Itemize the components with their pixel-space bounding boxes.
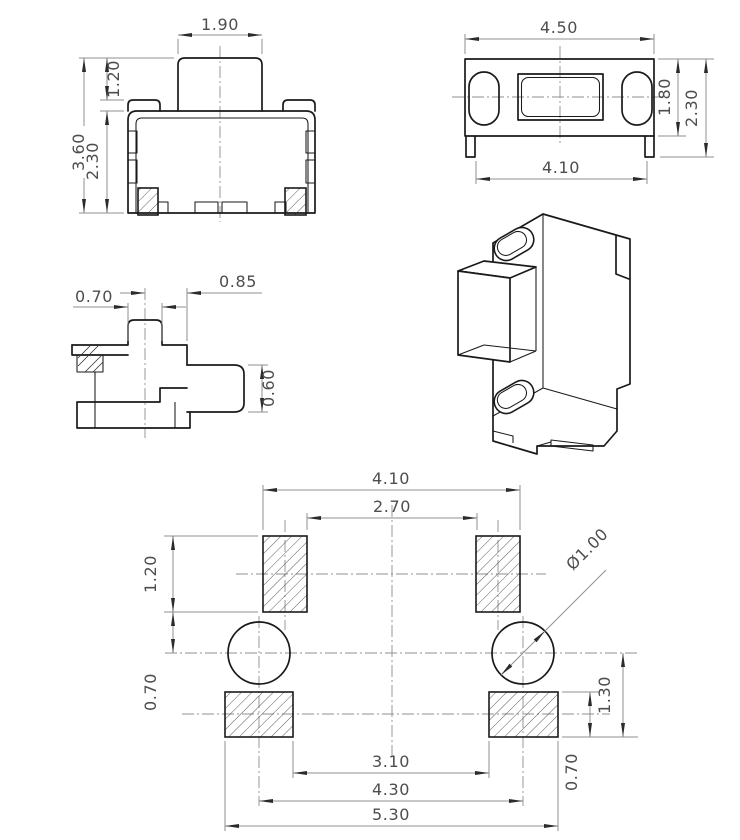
dim-lower-pad-height: 0.70 [562, 753, 581, 791]
side-flange [72, 345, 128, 355]
dim-boss-width: 0.70 [75, 287, 113, 306]
lower-pad-left [225, 692, 293, 737]
technical-drawing: 1.90 3.60 1.20 2.30 4.50 4.10 1.80 2.30 [0, 0, 740, 840]
side-stem [187, 365, 244, 412]
section-hatch [78, 345, 103, 372]
dim-center-to-face: 0.85 [219, 272, 257, 291]
body-inner-outline [136, 118, 308, 213]
oval-boss-left [469, 72, 499, 125]
iso-base-plate [493, 409, 617, 454]
side-profile-upper [72, 320, 187, 365]
drawing-sheet: 1.90 3.60 1.20 2.30 4.50 4.10 1.80 2.30 [0, 0, 740, 840]
top-body-outline [465, 59, 654, 136]
oval-boss-right [622, 72, 652, 125]
dim-pad-height: 1.20 [141, 555, 160, 593]
top-view: 4.50 4.10 1.80 2.30 [452, 18, 714, 184]
dim-lower-pad-inner-span: 3.10 [372, 752, 410, 771]
dim-overall-depth: 2.30 [682, 89, 701, 127]
top-legs [466, 136, 654, 157]
dim-terminal-span: 4.10 [542, 158, 580, 177]
land-pattern-view: 4.10 2.70 1.20 0.70 Ø1.00 1.30 0.70 3.10… [141, 469, 638, 831]
dim-lower-pad-pitch: 4.30 [372, 780, 410, 799]
terminal-right-hatched [285, 188, 306, 215]
dim-stem-height: 0.60 [259, 369, 278, 407]
body-bump-left [128, 100, 160, 111]
top-centerlines [452, 46, 666, 146]
iso-base-details [493, 431, 593, 451]
button-outline [178, 58, 262, 111]
dim-pad-inner-span: 2.70 [373, 497, 411, 516]
iso-button-front [458, 271, 510, 362]
dim-overall-width: 4.50 [540, 18, 578, 37]
side-base [77, 388, 190, 428]
isometric-view [458, 214, 630, 454]
dim-pad-to-hole-center: 0.70 [141, 673, 160, 711]
side-flange-block [77, 355, 103, 402]
dim-button-height: 1.20 [104, 60, 123, 98]
center-tabs [195, 202, 247, 213]
wall-notches [128, 131, 315, 183]
top-dimensions: 4.50 4.10 1.80 2.30 [465, 18, 714, 184]
terminal-left-hatched [138, 188, 158, 215]
front-dimensions: 1.90 3.60 1.20 2.30 [69, 15, 262, 213]
front-view: 1.90 3.60 1.20 2.30 [69, 15, 315, 222]
dim-pad-outer-span: 4.10 [372, 469, 410, 488]
side-view: 0.70 0.85 0.60 [72, 272, 278, 438]
side-dimensions: 0.70 0.85 0.60 [73, 272, 278, 412]
side-base-inner [95, 402, 175, 428]
dim-lower-pad-outer-span: 5.30 [372, 805, 410, 824]
dim-body-height: 2.30 [83, 142, 102, 180]
iso-boss-top [490, 223, 538, 265]
dim-button-width: 1.90 [201, 15, 239, 34]
land-pattern-dimensions: 4.10 2.70 1.20 0.70 Ø1.00 1.30 0.70 3.10… [141, 469, 638, 831]
lower-pad-right [489, 692, 558, 737]
upper-pad-right [476, 536, 520, 612]
iso-boss-bottom [490, 376, 538, 418]
dim-hole-center-to-pad-bottom: 1.30 [595, 676, 614, 714]
upper-pad-left [263, 536, 307, 612]
dim-body-depth: 1.80 [655, 78, 674, 116]
body-bump-right [283, 100, 315, 111]
dim-hole-diameter: Ø1.00 [562, 524, 612, 574]
